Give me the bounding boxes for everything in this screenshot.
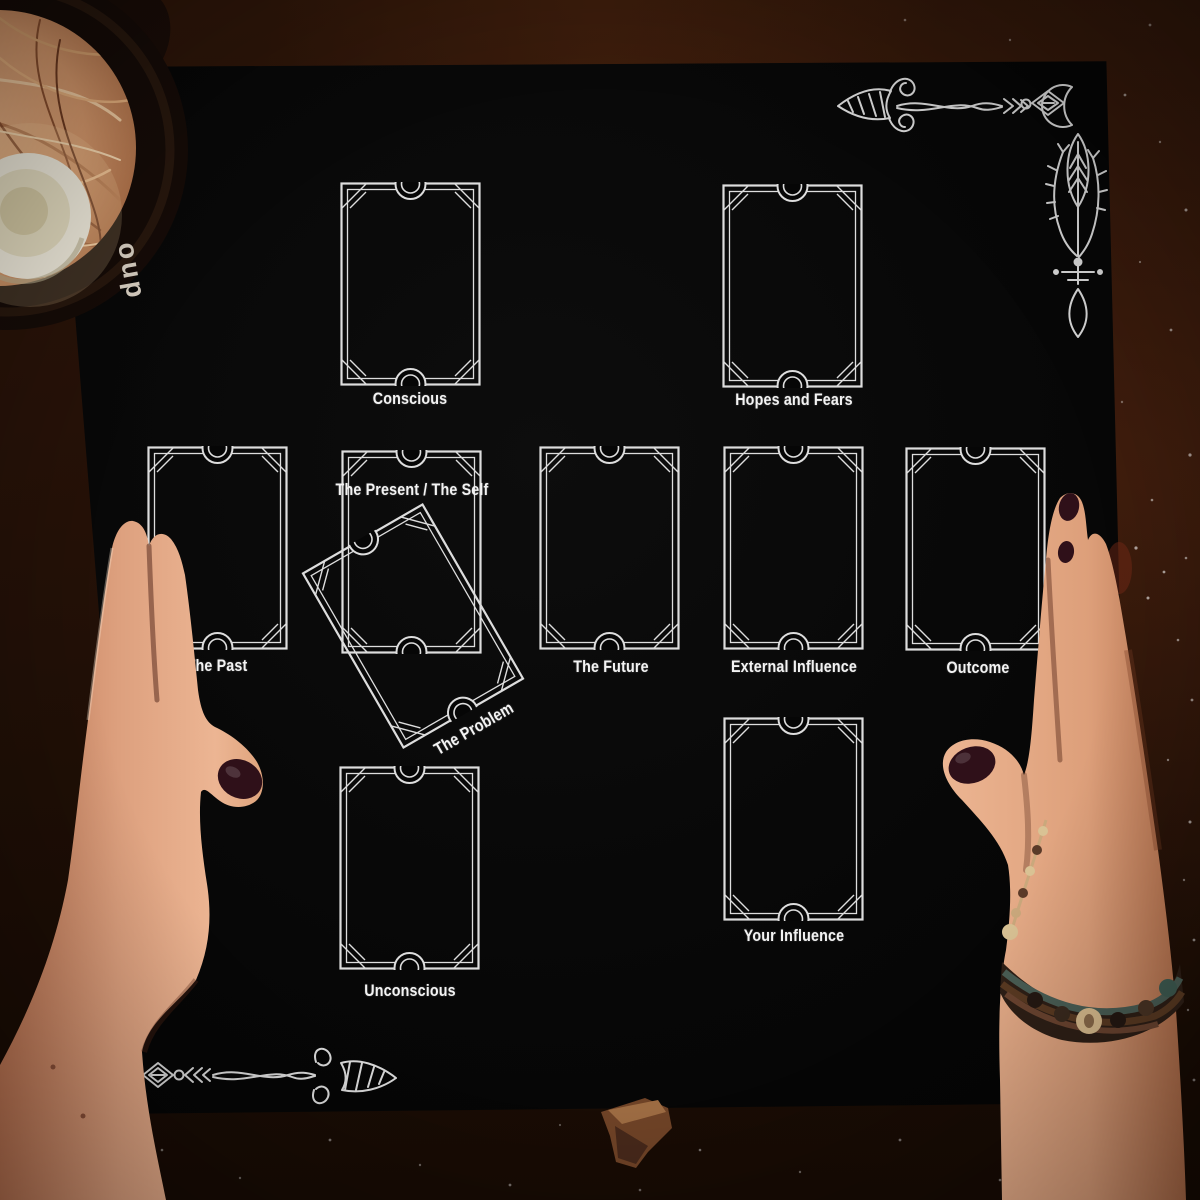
tarot-spread-photo: Conscious Hopes and Fears The Past The P… (0, 0, 1200, 1200)
photo-objects-layer: oup (0, 0, 1200, 1200)
right-hand (943, 491, 1186, 1200)
freckle (51, 1065, 56, 1070)
freckle (81, 1114, 86, 1119)
wood-stick (601, 1098, 672, 1168)
candle-pot: oup (0, 0, 190, 330)
left-hand (0, 521, 269, 1200)
